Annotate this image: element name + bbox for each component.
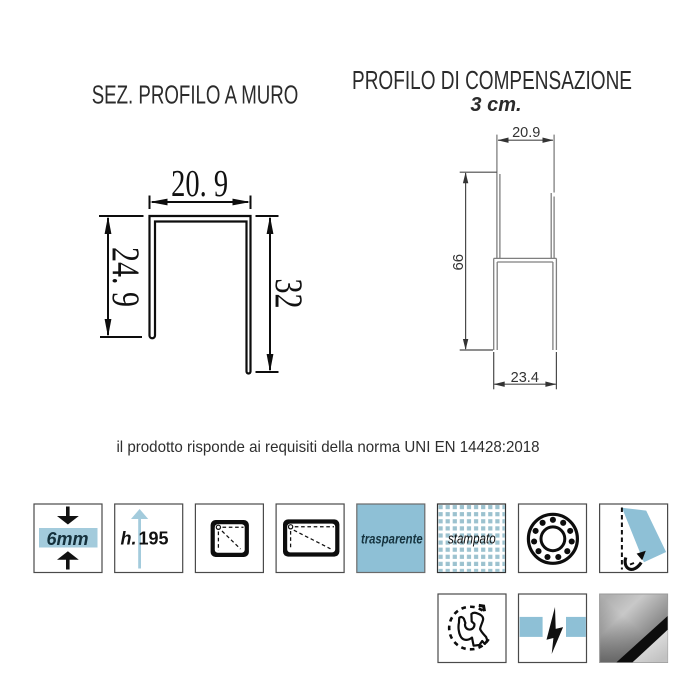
svg-text:20. 9: 20. 9: [171, 163, 228, 205]
svg-text:SEZ. PROFILO A MURO: SEZ. PROFILO A MURO: [92, 81, 299, 110]
svg-text:6mm: 6mm: [46, 529, 88, 549]
svg-text:24. 9: 24. 9: [104, 247, 148, 307]
svg-text:32: 32: [267, 278, 311, 308]
svg-text:trasparente: trasparente: [361, 532, 423, 547]
svg-text:h.195: h.195: [121, 529, 169, 549]
svg-text:3 cm.: 3 cm.: [470, 94, 521, 116]
svg-text:il prodotto risponde ai requis: il prodotto risponde ai requisiti della …: [116, 439, 539, 456]
svg-text:23.4: 23.4: [511, 370, 539, 386]
svg-text:PROFILO DI COMPENSAZIONE: PROFILO DI COMPENSAZIONE: [352, 66, 632, 94]
svg-text:stampato: stampato: [448, 530, 496, 547]
svg-text:20.9: 20.9: [512, 125, 540, 141]
svg-text:66: 66: [450, 254, 467, 271]
